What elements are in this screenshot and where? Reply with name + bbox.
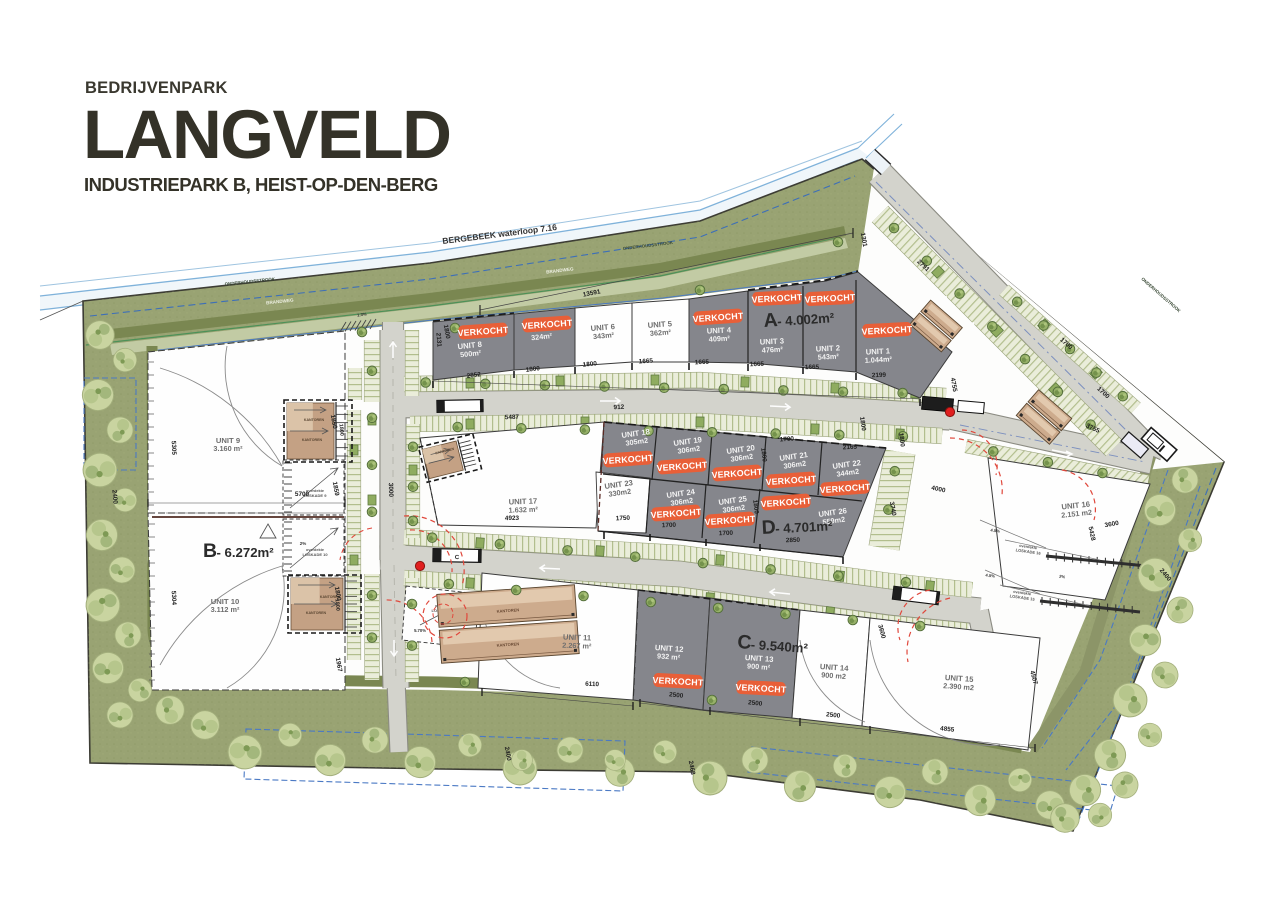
svg-text:5700: 5700 bbox=[295, 491, 310, 498]
svg-text:5305: 5305 bbox=[170, 441, 178, 456]
svg-text:1700: 1700 bbox=[780, 435, 795, 443]
svg-text:5304: 5304 bbox=[170, 591, 178, 606]
svg-text:1.632 m²: 1.632 m² bbox=[508, 505, 538, 515]
svg-text:LANGVELD: LANGVELD bbox=[83, 96, 451, 173]
svg-text:LOSKADE 10: LOSKADE 10 bbox=[302, 552, 328, 557]
svg-text:1665: 1665 bbox=[750, 361, 765, 369]
svg-text:912: 912 bbox=[613, 404, 624, 412]
svg-text:343m²: 343m² bbox=[593, 330, 615, 341]
svg-text:1700: 1700 bbox=[719, 530, 734, 538]
svg-text:B: B bbox=[203, 540, 217, 562]
svg-text:KANTOREN: KANTOREN bbox=[302, 438, 323, 442]
svg-text:C: C bbox=[455, 555, 460, 561]
svg-text:409m²: 409m² bbox=[709, 334, 731, 344]
svg-text:2131: 2131 bbox=[434, 332, 442, 347]
svg-text:3000: 3000 bbox=[387, 483, 395, 498]
svg-text:362m²: 362m² bbox=[650, 327, 672, 337]
svg-text:KANTOREN: KANTOREN bbox=[304, 418, 325, 422]
svg-text:932 m²: 932 m² bbox=[657, 651, 681, 662]
svg-text:2400: 2400 bbox=[110, 489, 118, 504]
svg-text:3.112 m²: 3.112 m² bbox=[211, 605, 240, 614]
svg-text:D: D bbox=[761, 516, 776, 539]
svg-text:BEDRIJVENPARK: BEDRIJVENPARK bbox=[85, 79, 228, 97]
svg-text:A: A bbox=[763, 309, 779, 332]
svg-text:543m²: 543m² bbox=[818, 352, 840, 362]
svg-text:2165: 2165 bbox=[843, 444, 858, 452]
svg-text:476m²: 476m² bbox=[762, 345, 784, 355]
svg-text:1750: 1750 bbox=[616, 515, 631, 523]
svg-text:1665: 1665 bbox=[639, 357, 654, 365]
svg-text:- 4.701m²: - 4.701m² bbox=[775, 518, 833, 536]
svg-text:900 m2: 900 m2 bbox=[821, 670, 846, 681]
svg-text:6110: 6110 bbox=[585, 681, 600, 688]
svg-text:2850: 2850 bbox=[786, 537, 801, 545]
svg-text:2.267 m²: 2.267 m² bbox=[562, 641, 592, 651]
svg-text:- 6.272m²: - 6.272m² bbox=[217, 545, 275, 560]
svg-text:5.70%: 5.70% bbox=[414, 628, 426, 633]
svg-text:1.044m²: 1.044m² bbox=[864, 354, 892, 364]
svg-text:5487: 5487 bbox=[505, 414, 520, 422]
svg-text:900 m²: 900 m² bbox=[747, 661, 771, 672]
svg-text:1665: 1665 bbox=[805, 364, 820, 371]
svg-text:INDUSTRIEPARK B, HEIST-OP-DEN-: INDUSTRIEPARK B, HEIST-OP-DEN-BERG bbox=[84, 174, 438, 195]
svg-text:KANTOREN: KANTOREN bbox=[306, 611, 327, 615]
svg-text:2199: 2199 bbox=[872, 372, 887, 380]
svg-text:3.160 m²: 3.160 m² bbox=[213, 444, 243, 453]
svg-text:2%: 2% bbox=[300, 541, 307, 546]
svg-text:4923: 4923 bbox=[505, 515, 520, 522]
svg-text:2%: 2% bbox=[1059, 574, 1066, 580]
svg-text:1700: 1700 bbox=[662, 522, 677, 530]
svg-text:1665: 1665 bbox=[695, 359, 710, 367]
